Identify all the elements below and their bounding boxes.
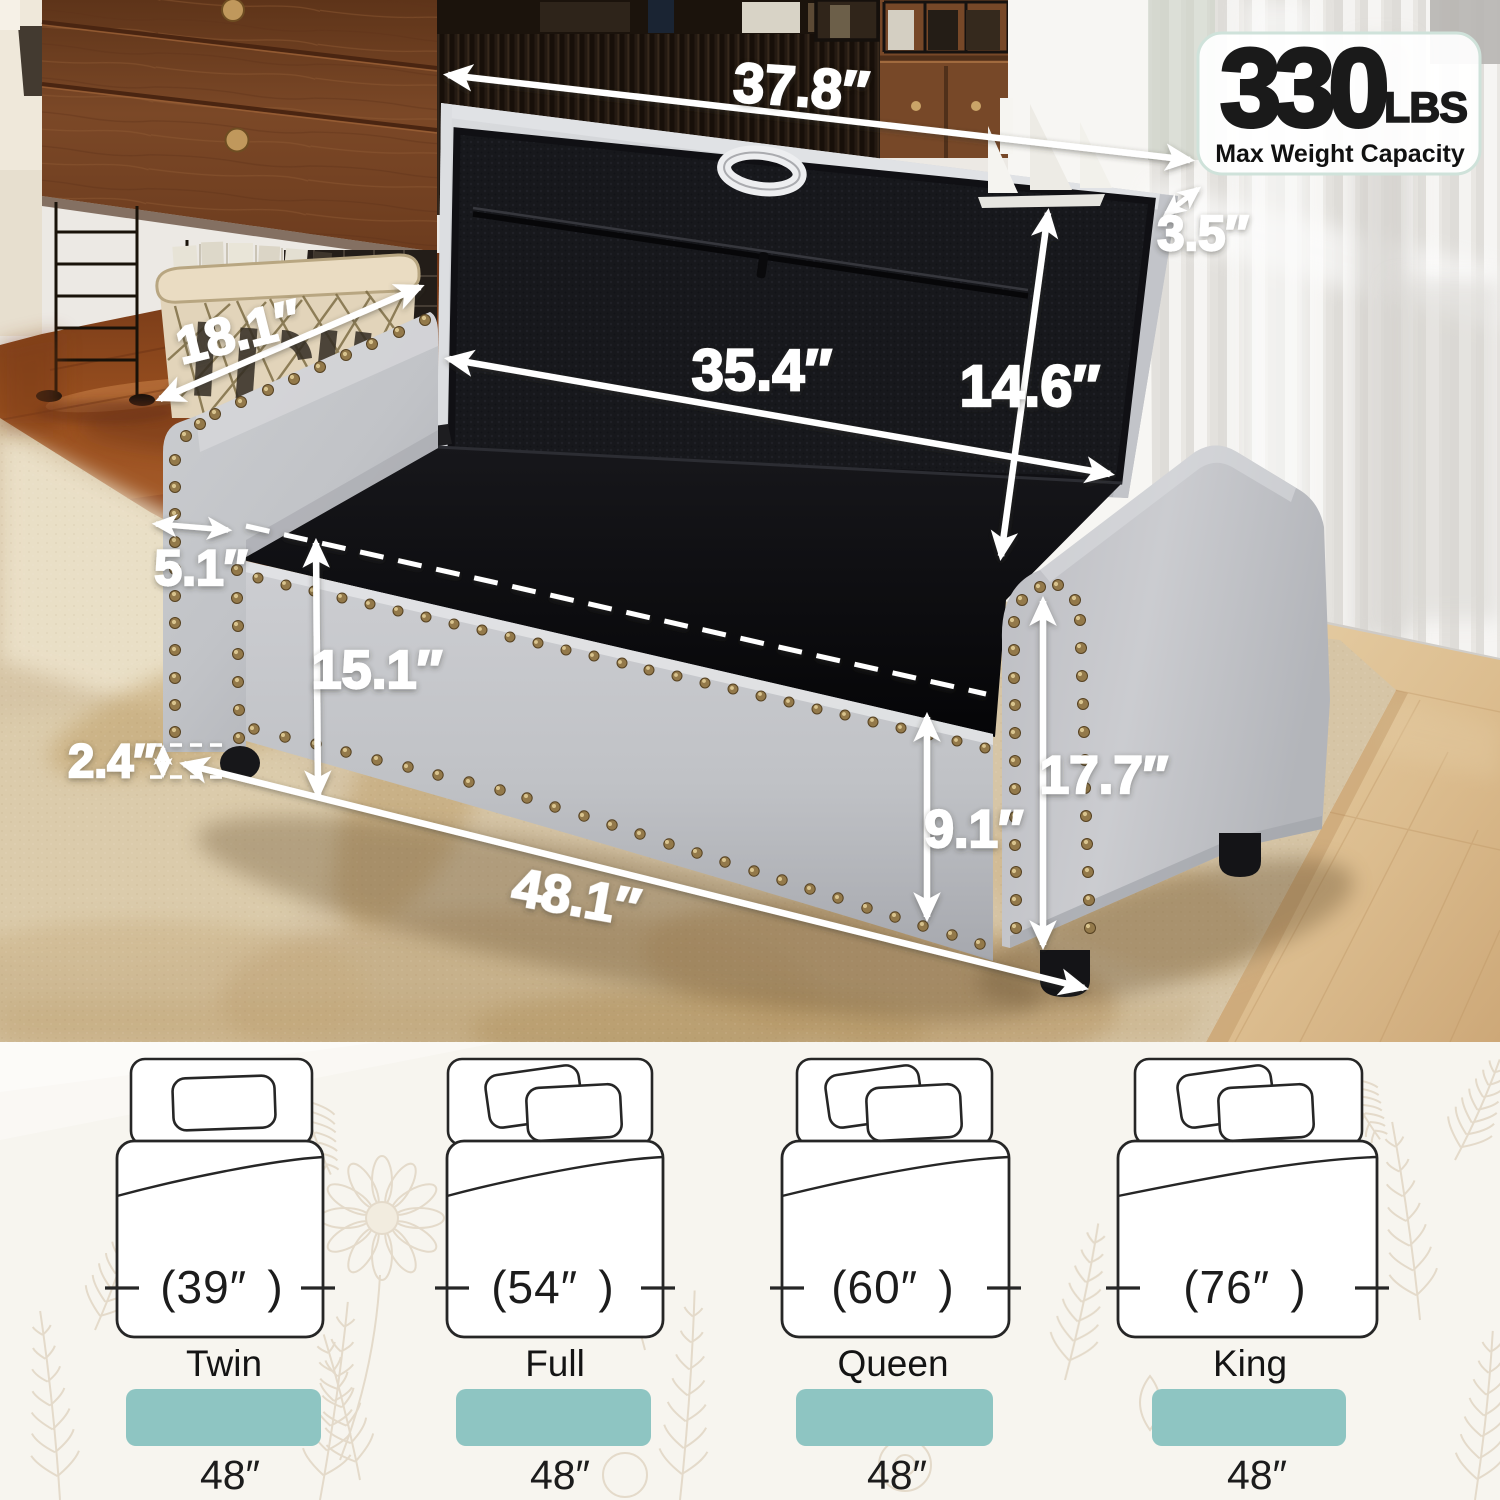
svg-text:King: King — [1213, 1343, 1287, 1384]
svg-text:5.1″: 5.1″ — [154, 540, 248, 596]
svg-text:48″: 48″ — [200, 1452, 260, 1498]
svg-text:LBS: LBS — [1384, 84, 1467, 132]
svg-text:48″: 48″ — [1227, 1452, 1287, 1498]
svg-text:37.8″: 37.8″ — [731, 50, 871, 122]
svg-text:17.7″: 17.7″ — [1040, 746, 1169, 805]
svg-text:14.6″: 14.6″ — [960, 354, 1101, 419]
svg-text:Twin: Twin — [186, 1343, 262, 1384]
svg-text:(39″ ): (39″ ) — [160, 1261, 284, 1313]
svg-text:35.4″: 35.4″ — [692, 338, 833, 403]
svg-text:9.1″: 9.1″ — [924, 800, 1023, 859]
svg-text:48″: 48″ — [530, 1452, 590, 1498]
svg-text:2.4″: 2.4″ — [68, 734, 156, 787]
svg-text:48″: 48″ — [867, 1452, 927, 1498]
svg-text:(60″ ): (60″ ) — [831, 1261, 955, 1313]
svg-text:Max Weight Capacity: Max Weight Capacity — [1215, 140, 1465, 168]
svg-text:(76″ ): (76″ ) — [1183, 1261, 1307, 1313]
svg-text:330: 330 — [1220, 27, 1385, 150]
svg-text:Full: Full — [525, 1343, 585, 1384]
svg-text:Queen: Queen — [837, 1343, 948, 1384]
svg-text:15.1″: 15.1″ — [312, 640, 443, 700]
svg-text:3.5″: 3.5″ — [1157, 207, 1249, 261]
svg-text:(54″ ): (54″ ) — [491, 1261, 615, 1313]
